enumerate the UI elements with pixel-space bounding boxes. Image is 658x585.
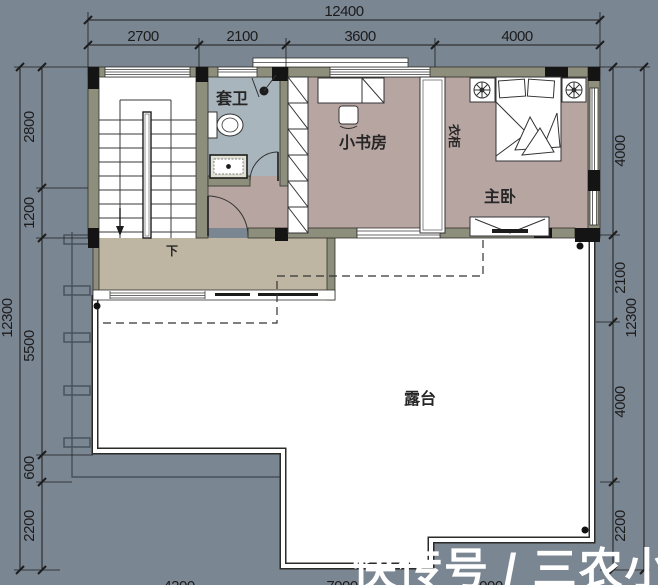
column: [88, 228, 99, 248]
column: [588, 170, 600, 191]
corridor-floor: [93, 238, 335, 292]
floor-plan-canvas: 套卫 小书房 衣柜 主卧 下 露台 12400 2700 2100 3600 4…: [0, 0, 658, 585]
stair-rail: [143, 112, 151, 238]
column: [272, 67, 288, 81]
dim-total-height-left: 12300: [0, 298, 16, 337]
column: [88, 67, 99, 89]
dim-left-3: 5500: [21, 330, 38, 362]
stair-bath-divider: [196, 67, 208, 238]
toilet-icon: [217, 114, 243, 136]
dim-bottom-1: 4200: [163, 578, 195, 585]
bathroom-label: 套卫: [215, 89, 248, 108]
floor-drain-icon: [226, 164, 231, 169]
chair: [339, 106, 358, 124]
dim-top-2: 2100: [226, 28, 258, 45]
storage-cabinets: [288, 77, 308, 233]
column: [575, 228, 600, 242]
column: [545, 67, 568, 78]
dim-top-3: 3600: [344, 28, 376, 45]
east-window: [590, 88, 598, 172]
dim-right-3: 4000: [612, 386, 629, 418]
desk: [318, 78, 384, 103]
master-bedroom-label: 主卧: [484, 187, 516, 206]
study-label: 小书房: [339, 133, 387, 152]
dim-top-4: 4000: [501, 28, 533, 45]
pillow: [527, 79, 554, 98]
dim-total-height-right: 12300: [623, 298, 640, 337]
west-wall: [88, 67, 99, 238]
tv-icon: [492, 229, 528, 233]
column: [196, 67, 208, 82]
toilet-icon: [208, 112, 217, 138]
tv-cabinet: [470, 217, 549, 236]
dim-left-5: 2200: [21, 510, 38, 542]
column: [588, 67, 600, 81]
wardrobe-label: 衣柜: [447, 124, 462, 148]
dim-left-4: 600: [21, 456, 38, 480]
terrace-label: 露台: [404, 389, 436, 408]
stairs-down-label: 下: [166, 244, 178, 258]
dim-right-4: 2200: [612, 510, 629, 542]
watermark-text: 快传号 / 三农小姝艳: [352, 544, 658, 585]
pillow: [498, 79, 525, 98]
floor-plan-screenshot: 套卫 小书房 衣柜 主卧 下 露台 12400 2700 2100 3600 4…: [0, 0, 658, 585]
dim-left-1: 2800: [21, 111, 38, 143]
dim-top-1: 2700: [127, 28, 159, 45]
corridor: [93, 238, 335, 300]
dim-right-1: 4000: [612, 135, 629, 167]
wardrobe: [420, 77, 445, 233]
bath-study-divider: [280, 67, 288, 186]
rain-pipe-dot: [577, 243, 584, 250]
rain-pipe-dot: [94, 303, 101, 310]
column: [275, 228, 288, 241]
lamp-icon: [474, 82, 490, 98]
rain-pipe-dot: [582, 527, 589, 534]
dim-total-width: 12400: [324, 3, 363, 20]
dim-left-2: 1200: [21, 197, 38, 229]
lamp-icon: [566, 82, 582, 98]
dim-right-2: 2100: [612, 262, 629, 294]
